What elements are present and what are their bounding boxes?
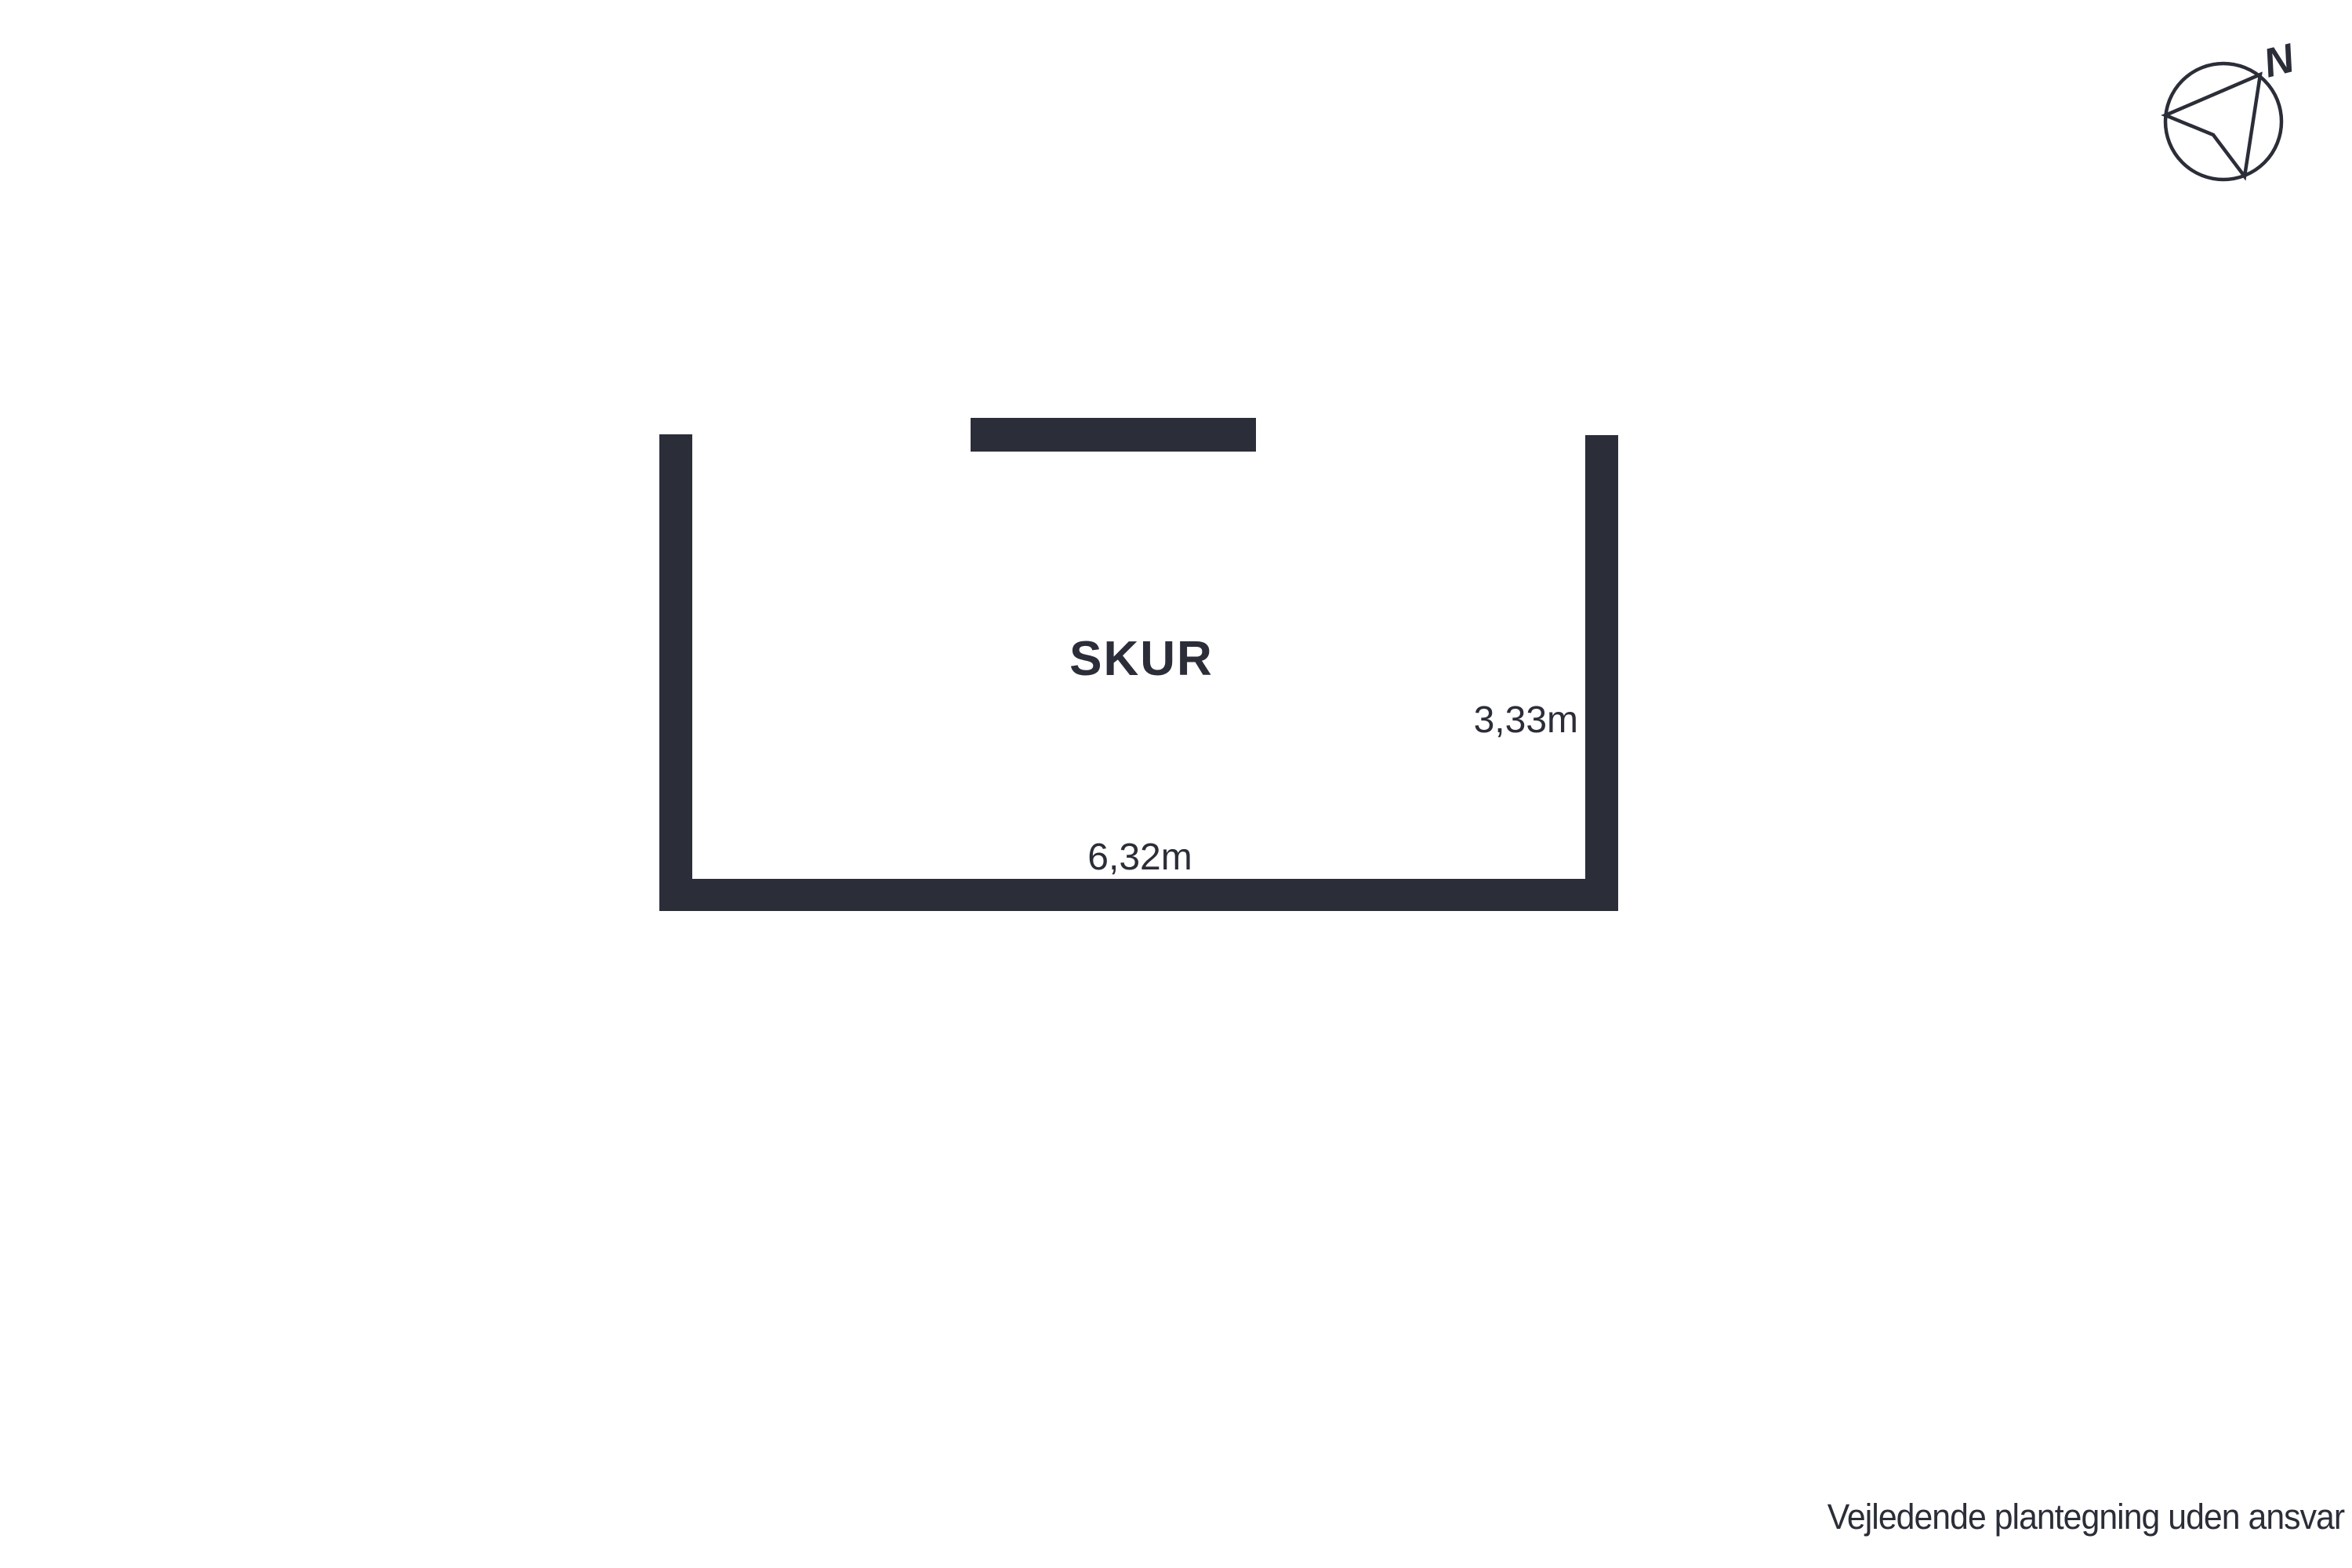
compass-rose-graphic: [2148, 24, 2328, 204]
wall-bottom: [659, 879, 1618, 911]
compass-icon: N: [2148, 24, 2328, 204]
disclaimer-text: Vejledende plantegning uden ansvar: [1828, 1497, 2344, 1537]
wall-top-segment: [971, 418, 1256, 452]
room-label: SKUR: [985, 633, 1298, 685]
height-dimension-label: 3,33m: [1343, 700, 1578, 741]
floorplan-canvas: SKUR 3,33m 6,32m N Vejledende plantegnin…: [0, 0, 2352, 1568]
wall-left: [659, 434, 692, 911]
width-dimension-label: 6,32m: [983, 837, 1297, 878]
wall-right: [1585, 435, 1618, 911]
